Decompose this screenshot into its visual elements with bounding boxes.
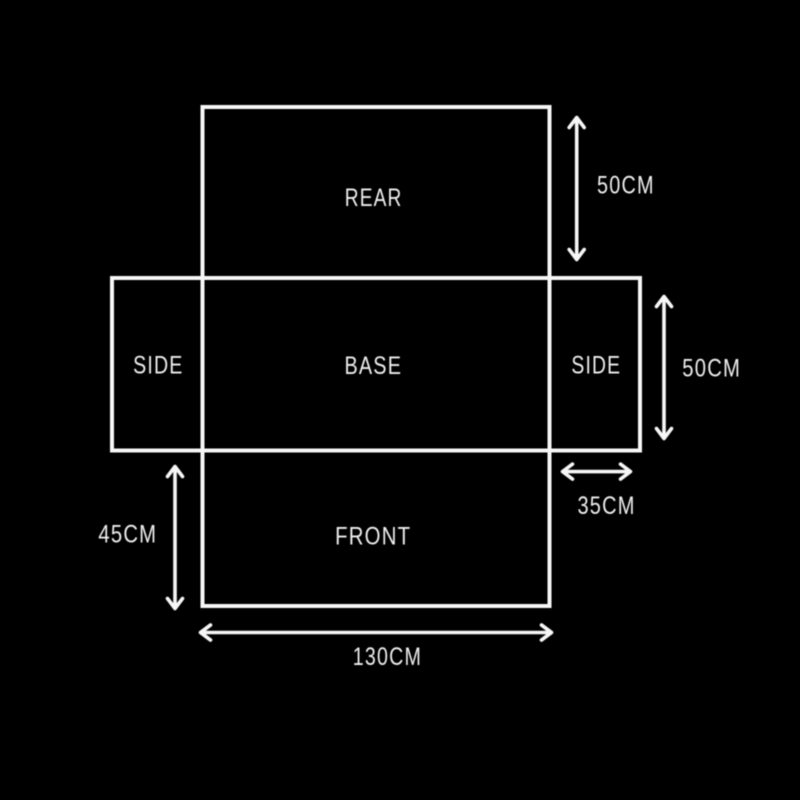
svg-text:50CM: 50CM (597, 171, 655, 199)
svg-text:SIDE: SIDE (571, 351, 621, 379)
svg-text:REAR: REAR (345, 183, 403, 211)
svg-text:FRONT: FRONT (335, 521, 411, 550)
svg-text:45CM: 45CM (98, 519, 157, 548)
svg-text:130CM: 130CM (353, 643, 422, 671)
svg-text:35CM: 35CM (577, 492, 635, 520)
svg-text:50CM: 50CM (682, 353, 741, 382)
svg-text:BASE: BASE (344, 352, 402, 380)
svg-text:SIDE: SIDE (133, 351, 183, 379)
